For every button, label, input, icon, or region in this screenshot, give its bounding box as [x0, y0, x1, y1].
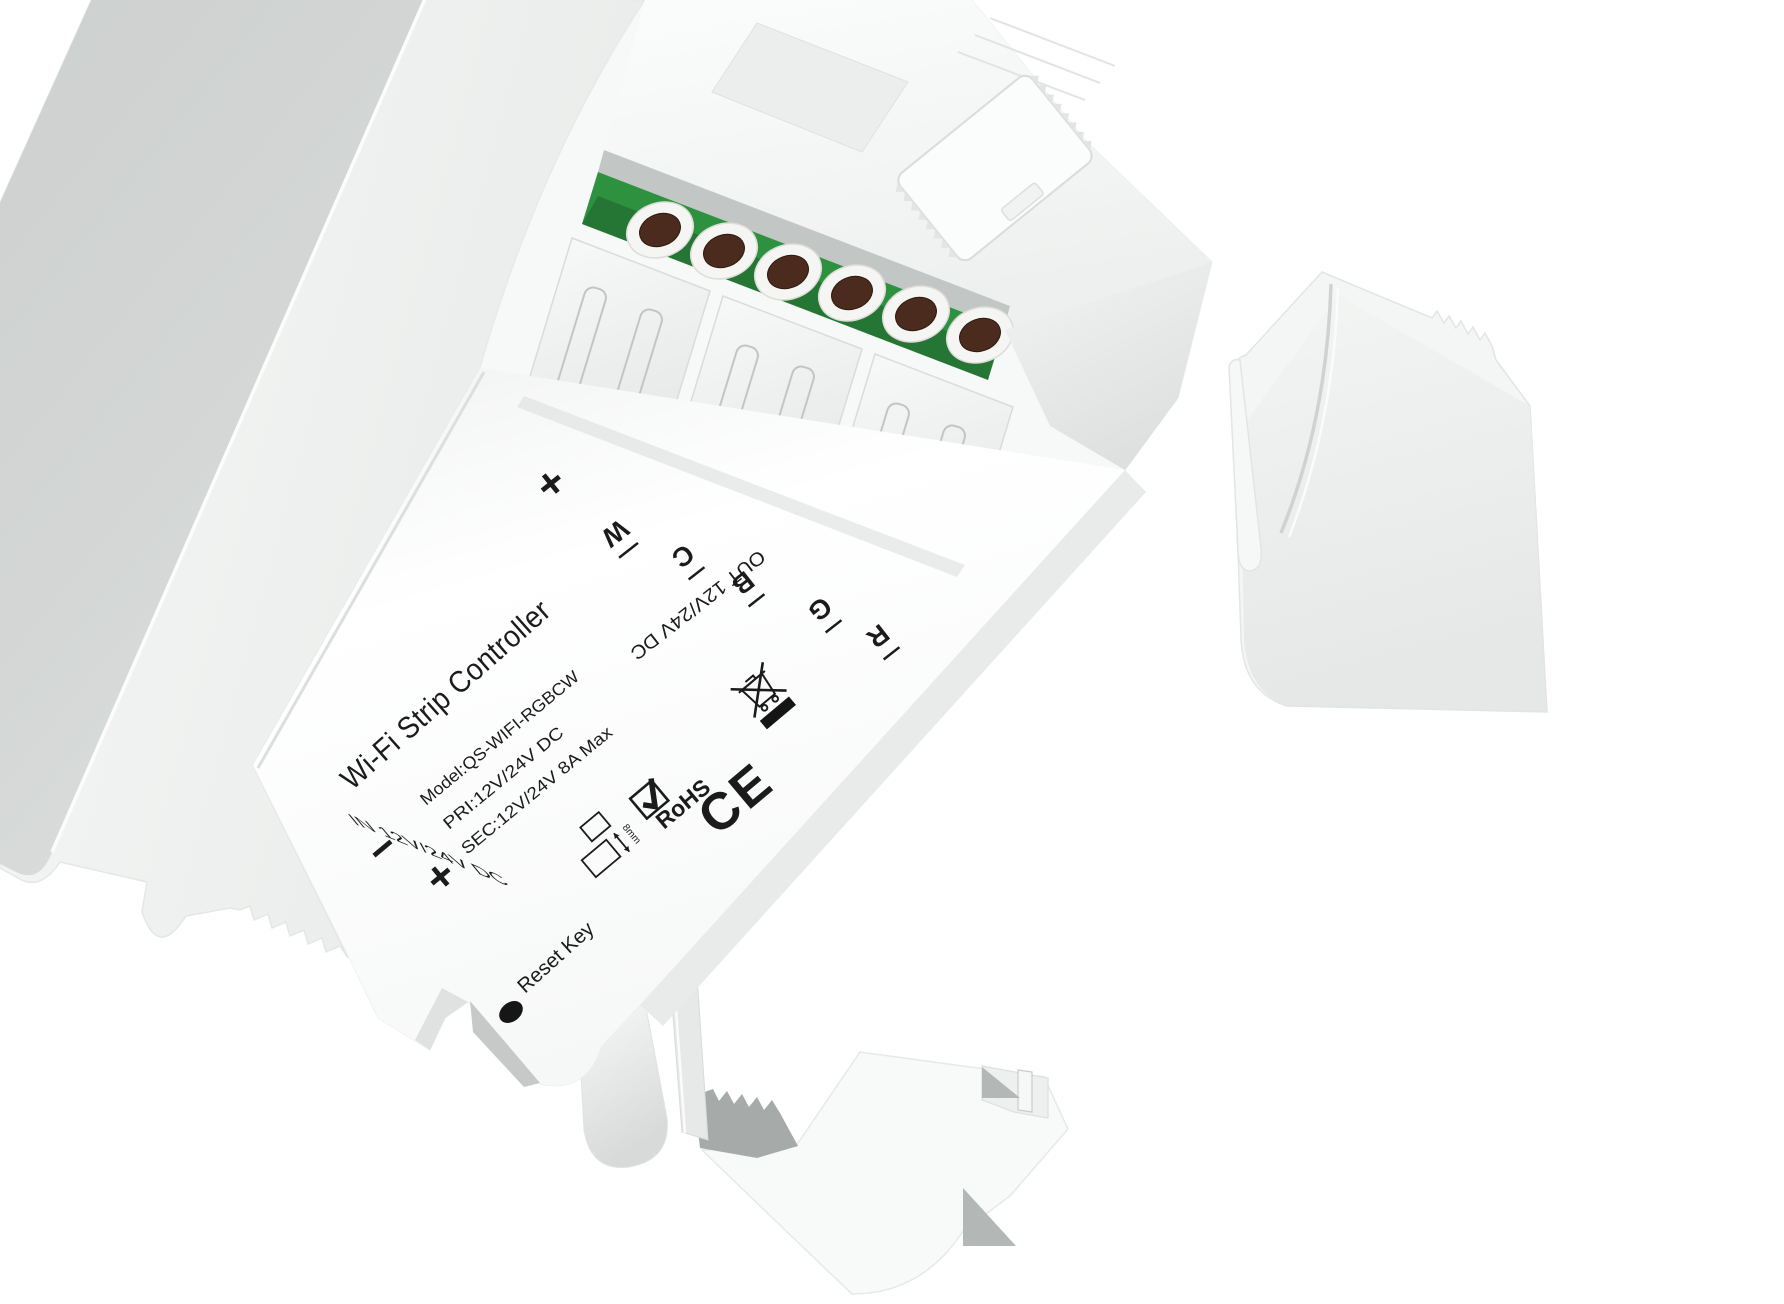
bracket-post-slot — [1018, 1070, 1032, 1112]
end-cap — [1229, 272, 1547, 712]
product-photo-wifi-strip-controller: Wi-Fi Strip Controller Model:QS-WIFI-RGB… — [0, 0, 1784, 1304]
